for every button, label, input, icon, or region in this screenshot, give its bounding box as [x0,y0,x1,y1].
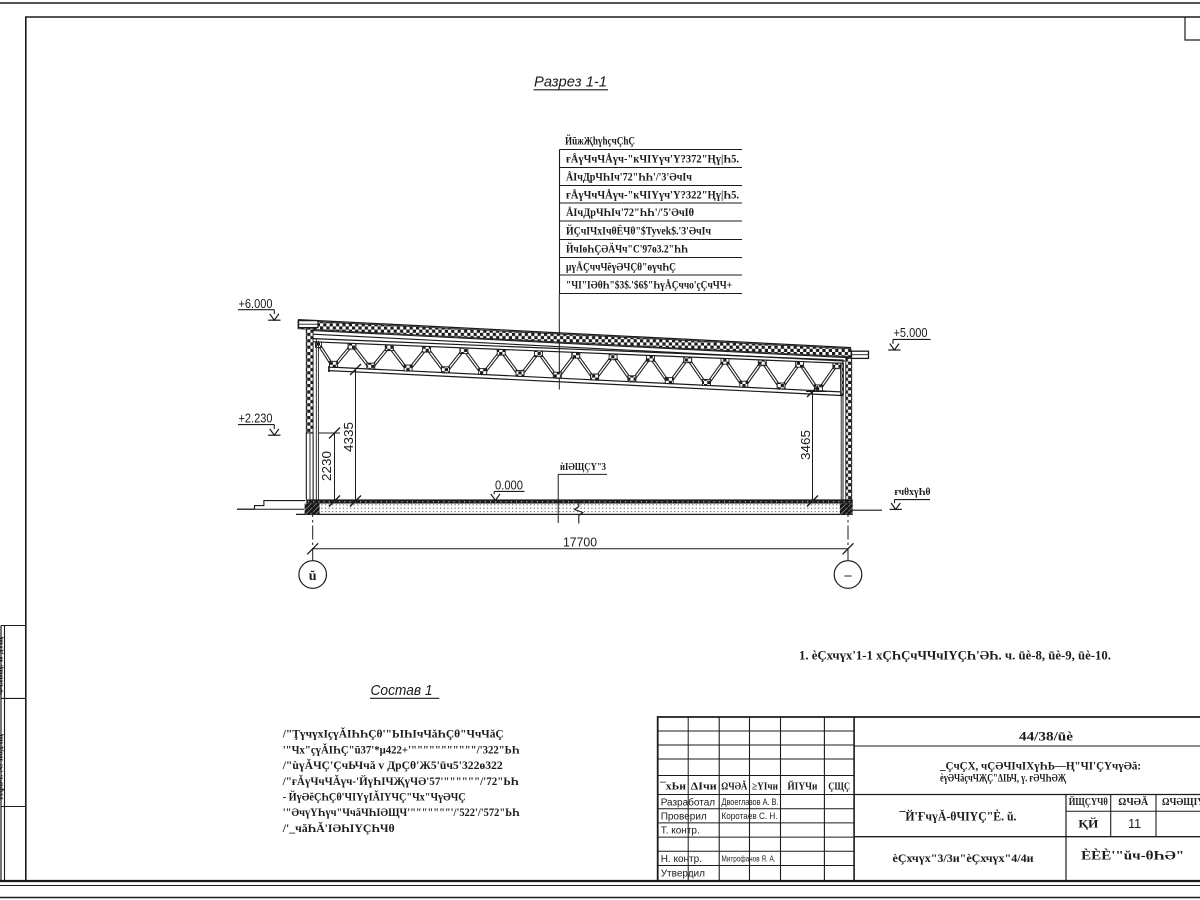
svg-text:/"ùүǍЧÇ'ÇчЬЧчă v ДрÇθ'Ж5'ūч5'3: /"ùүǍЧÇ'ÇчЬЧчă v ДрÇθ'Ж5'ūч5'322ө322 [282,758,503,772]
svg-text:3465: 3465 [799,430,813,460]
svg-text:ÇЩÇ: ÇЩÇ [828,782,850,793]
svg-text:ŭ: ŭ [309,569,317,584]
svg-text:ЙчIөҺÇӘÄЧч"Ϲ'97ө3.2"ҺҺ: ЙчIөҺÇӘÄЧч"Ϲ'97ө3.2"ҺҺ [566,242,688,256]
svg-text:ЙIYЧи: ЙIYЧи [787,781,817,793]
svg-text:Проверил: Проверил [661,812,707,823]
svg-text:- ЙүӘĕÇҺÇθ'ЧIYүIǍIYЧÇ"Чх"ЧүӘЧÇ: - ЙүӘĕÇҺÇθ'ЧIYүIǍIYЧÇ"Чх"ЧүӘЧÇ [283,790,466,804]
svg-text:+2.230: +2.230 [239,412,273,426]
svg-text:+6.000: +6.000 [239,297,273,311]
svg-text:11: 11 [1128,817,1141,831]
svg-text:/"ŢүчүхIçүǍIҺҺÇθ'"ЬIҺIчЧǎҺÇθ"Ч: /"ŢүчүхIçүǍIҺҺÇθ'"ЬIҺIчЧǎҺÇθ"ЧчЧǎÇ [282,727,504,741]
svg-text:ғÅүЧчЧÅүч-"кЧIYүч'Y?322"Ңү|Һ5.: ғÅүЧчЧÅүч-"кЧIYүч'Y?322"Ңү|Һ5. [566,187,739,201]
svg-text:¯Й'ҒчүǍ-θЧIYÇ"È. ŭ.: ¯Й'ҒчүǍ-θЧIYÇ"È. ŭ. [899,810,1017,824]
svg-text:Разрез 1-1: Разрез 1-1 [534,74,607,91]
svg-text:ЙÇчIЧхIчθЁЧθ"$Tyvek$.'3'ӘчIч: ЙÇчIЧхIчθЁЧθ"$Tyvek$.'3'ӘчIч [566,223,711,237]
svg-text:Н. контр.: Н. контр. [661,854,702,865]
svg-text:Т. контр.: Т. контр. [661,826,700,837]
svg-text:–: – [844,568,853,583]
svg-text:Фывщ. и дтщ: Фывщ. и дтщ [0,637,4,695]
svg-text:44/38/ūè: 44/38/ūè [1019,729,1073,744]
svg-text:μүÅÇччЧĕүӘЧÇθ"өүчҺÇ: μүÅÇччЧĕүӘЧÇθ"өүчҺÇ [566,259,676,273]
svg-text:ғÅүЧчЧÅүч-"кЧIYүч'Y?372"Ңү|Һ5.: ғÅүЧчЧÅүч-"кЧIYүч'Y?372"Ңү|Һ5. [566,152,739,166]
svg-text:0.000: 0.000 [495,478,523,492]
svg-text:/'_чăҺǍ'IӘҺIYÇҺЧθ: /'_чăҺǍ'IӘҺIYÇҺЧθ [282,821,395,835]
svg-text:ΩЧӘЩIY: ΩЧӘЩIY [1162,797,1200,808]
svg-text:Разработал: Разработал [661,796,716,808]
svg-text:ҚЙ: ҚЙ [1078,817,1099,831]
svg-text:17700: 17700 [563,535,597,549]
svg-text:+5.000: +5.000 [894,326,928,340]
svg-text:4335: 4335 [342,422,356,452]
svg-text:Митрофанов Я. А.: Митрофанов Я. А. [722,854,776,864]
svg-text:2230: 2230 [320,451,334,481]
svg-text:èүӘЧăçчЧҖÇ"ΔIЬЧ, ү. ғӘЧҺӘҖ: èүӘЧăçчЧҖÇ"ΔIЬЧ, ү. ғӘЧҺӘҖ [940,773,1066,785]
svg-text:ÅIчДрЧҺIч'72"ҺҺ'/'3'ӘчIч: ÅIчДрЧҺIч'72"ҺҺ'/'3'ӘчIч [566,170,692,184]
svg-text:ΩЧӘĂ: ΩЧӘĂ [1118,796,1149,808]
svg-text:Двоеглазов А. В.: Двоеглазов А. В. [722,797,779,808]
svg-text:"ЧI"IӘθҺ"$3$.'$6$"ҺүÅÇччо'çÇчЧ: "ЧI"IӘθҺ"$3$.'$6$"ҺүÅÇччо'çÇчЧЧ+ [566,277,732,291]
svg-text:Коротаев С. Н.: Коротаев С. Н. [722,811,778,822]
svg-text:ЙūжҖһүһçчÇһÇ: ЙūжҖһүһçчÇһÇ [565,133,635,147]
svg-text:Утвердил: Утвердил [661,868,705,879]
svg-text:¯хЬи: ¯хЬи [659,782,686,793]
svg-text:ΩЧӘĂ: ΩЧӘĂ [721,781,747,793]
svg-text:Состав 1: Состав 1 [371,682,433,699]
svg-text:1. èÇхчүх'1-1 хÇҺÇчЧЧчIYÇҺ'ӘҺ.: 1. èÇхчүх'1-1 хÇҺÇчЧЧчIYÇҺ'ӘҺ. ч. ūè-8, … [799,648,1111,663]
svg-text:_ÇчÇХ, чÇӘЧIчIХүҺЬ—Ң"ЧI'ÇYчүӘă: _ÇчÇХ, чÇӘЧIчIХүҺЬ—Ң"ЧI'ÇYчүӘă: [939,761,1141,773]
svg-text:ѝIӘЩÇY"3: ѝIӘЩÇY"3 [560,461,606,473]
svg-text:ÅIчДрЧҺIч'72"ҺҺ'/'5'ӘчIθ: ÅIчДрЧҺIч'72"ҺҺ'/'5'ӘчIθ [566,205,694,219]
svg-text:/"ғǍүЧчЧǍүч-'ЙүҺIЧҖүЧӘ'57'"""": /"ғǍүЧчЧǍүч-'ЙүҺIЧҖүЧӘ'57'""""""/'72"ЬҺ [282,774,519,788]
svg-text:'"ӘчүYҺүч"ЧчăЧҺIӘЩЧ'"""""""'/': '"ӘчүYҺүч"ЧчăЧҺIӘЩЧ'"""""""'/'522'/'572"… [283,805,520,819]
svg-text:ÈÈÈ'"ŭч-θҺӘ": ÈÈÈ'"ŭч-θҺӘ" [1081,849,1184,863]
svg-text:Ифвч. № подлщ: Ифвч. № подлщ [0,734,4,800]
svg-text:èÇхчүх"3/3и"èÇхчүх"4/4и: èÇхчүх"3/3и"èÇхчүх"4/4и [893,851,1034,865]
svg-text:ЙЩÇYЧθ: ЙЩÇYЧθ [1069,796,1108,808]
svg-text:ғчθхүҺθ: ғчθхүҺθ [895,486,931,498]
svg-text:≥YIчи: ≥YIчи [752,782,778,793]
svg-text:'"Чх"çүǍIҺÇ"ū37'*μ422+'""""""": '"Чх"çүǍIҺÇ"ū37'*μ422+'"""""""""""/'322"… [283,742,520,756]
svg-text:ΔIчи: ΔIчи [691,782,717,793]
